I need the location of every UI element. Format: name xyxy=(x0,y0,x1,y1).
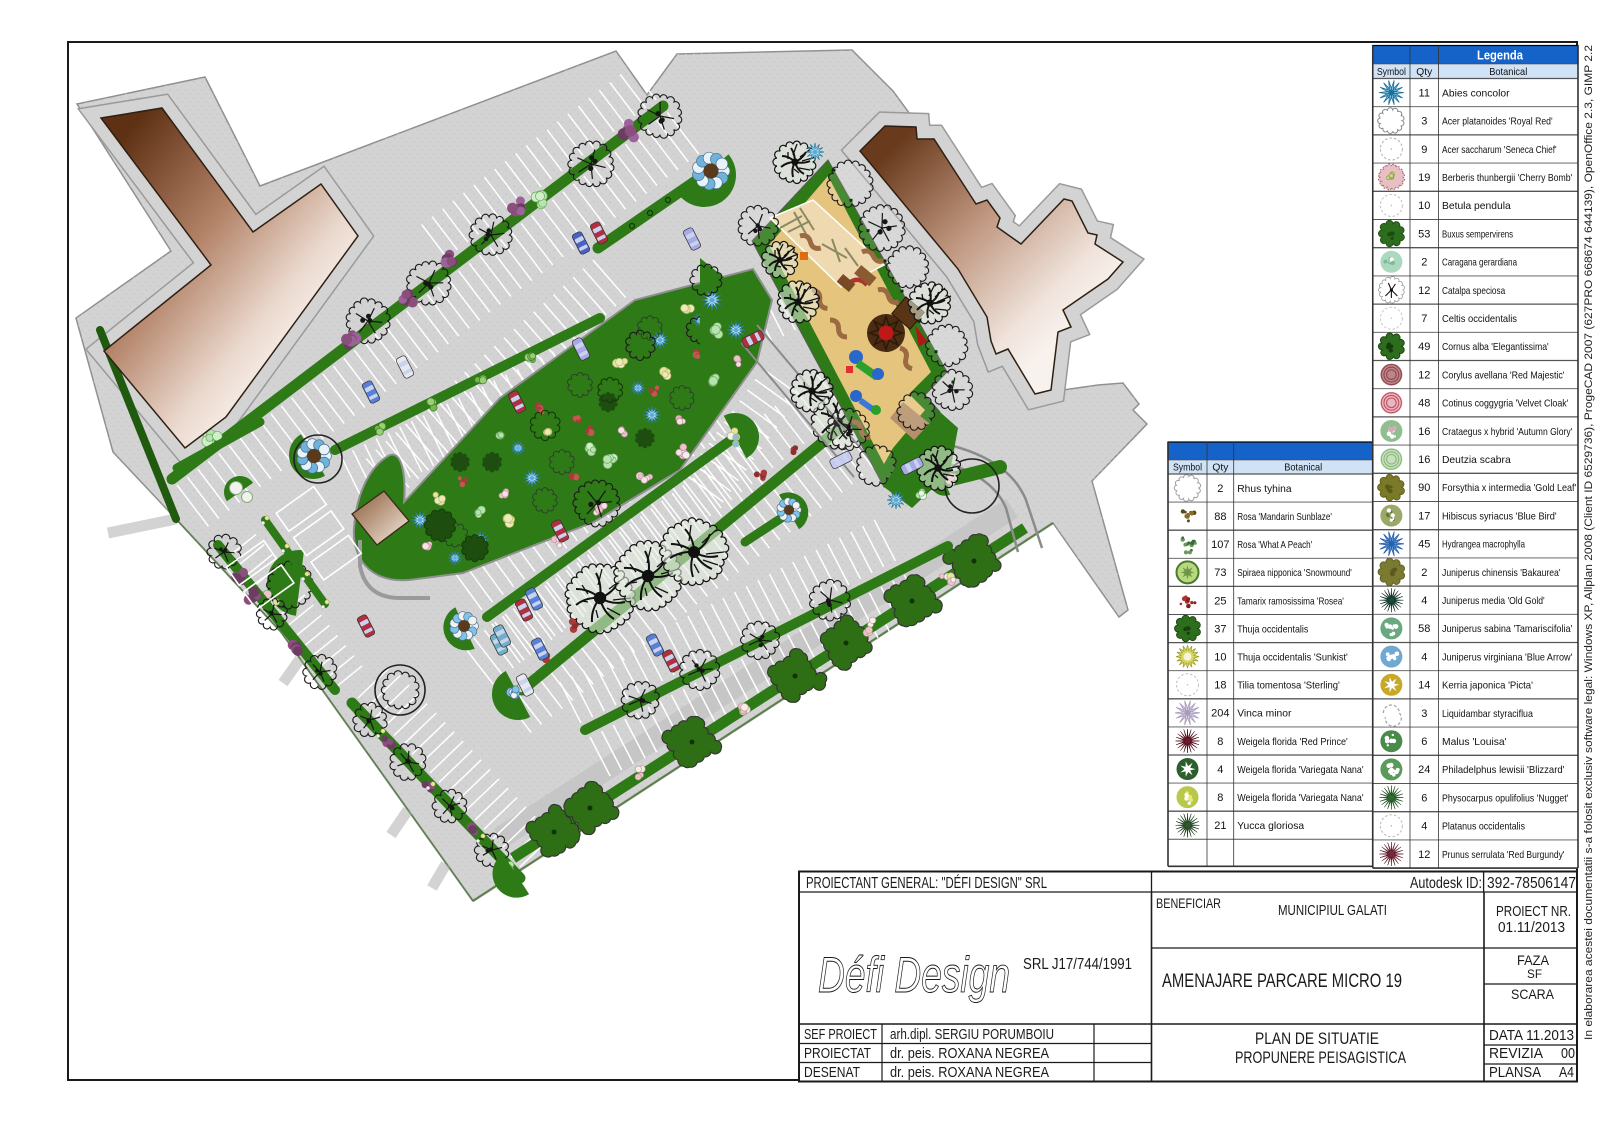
svg-text:18: 18 xyxy=(1214,680,1226,692)
svg-text:88: 88 xyxy=(1214,511,1226,523)
svg-text:SCARA: SCARA xyxy=(1511,986,1555,1002)
svg-text:Caragana gerardiana: Caragana gerardiana xyxy=(1442,258,1517,269)
svg-text:Acer saccharum 'Seneca Chief': Acer saccharum 'Seneca Chief' xyxy=(1442,145,1557,156)
svg-text:arh.dipl. SERGIU PORUMBOIU: arh.dipl. SERGIU PORUMBOIU xyxy=(890,1026,1054,1043)
svg-text:6: 6 xyxy=(1421,792,1427,804)
svg-text:14: 14 xyxy=(1418,680,1430,692)
svg-text:48: 48 xyxy=(1418,398,1430,410)
svg-text:Malus 'Louisa': Malus 'Louisa' xyxy=(1442,737,1507,748)
svg-text:Cornus alba 'Elegantissima': Cornus alba 'Elegantissima' xyxy=(1442,342,1549,353)
svg-text:SF: SF xyxy=(1527,967,1542,981)
svg-text:16: 16 xyxy=(1418,426,1430,438)
svg-text:45: 45 xyxy=(1418,539,1430,551)
svg-text:DESENAT: DESENAT xyxy=(804,1064,860,1081)
svg-text:11: 11 xyxy=(1419,87,1430,99)
svg-text:Qty: Qty xyxy=(1416,66,1433,78)
svg-text:01.11/2013: 01.11/2013 xyxy=(1498,920,1565,936)
svg-text:12: 12 xyxy=(1418,285,1430,297)
svg-text:Philadelphus lewisii 'Blizzard: Philadelphus lewisii 'Blizzard' xyxy=(1442,765,1565,776)
svg-text:12: 12 xyxy=(1418,849,1430,861)
svg-text:Vinca minor: Vinca minor xyxy=(1237,709,1292,720)
svg-text:Celtis occidentalis: Celtis occidentalis xyxy=(1442,314,1517,325)
svg-text:Buxus sempervirens: Buxus sempervirens xyxy=(1442,229,1513,240)
svg-text:107: 107 xyxy=(1211,539,1229,551)
svg-text:Weigela florida 'Red Prince': Weigela florida 'Red Prince' xyxy=(1237,737,1348,748)
svg-text:Symbol: Symbol xyxy=(1173,462,1202,474)
svg-text:21: 21 xyxy=(1214,820,1226,832)
svg-text:25: 25 xyxy=(1214,595,1226,607)
svg-text:PROIECTANT GENERAL: "DÉFI DESI: PROIECTANT GENERAL: "DÉFI DESIGN" SRL xyxy=(806,875,1047,892)
svg-text:Corylus avellana 'Red Majestic: Corylus avellana 'Red Majestic' xyxy=(1442,370,1565,381)
svg-text:8: 8 xyxy=(1217,736,1223,748)
svg-text:Tilia tomentosa 'Sterling': Tilia tomentosa 'Sterling' xyxy=(1237,681,1340,692)
svg-text:10: 10 xyxy=(1214,651,1226,663)
svg-text:00: 00 xyxy=(1561,1045,1575,1062)
svg-text:Qty: Qty xyxy=(1212,462,1229,474)
svg-text:6: 6 xyxy=(1421,736,1427,748)
svg-text:37: 37 xyxy=(1214,623,1226,635)
svg-text:49: 49 xyxy=(1418,341,1430,353)
svg-text:3: 3 xyxy=(1421,116,1427,128)
svg-text:Yucca gloriosa: Yucca gloriosa xyxy=(1237,821,1304,832)
svg-text:Cotinus coggygria 'Velvet Cloa: Cotinus coggygria 'Velvet Cloak' xyxy=(1442,399,1568,410)
svg-text:8: 8 xyxy=(1217,792,1223,804)
svg-text:BENEFICIAR: BENEFICIAR xyxy=(1156,895,1221,911)
svg-text:PROPUNERE PEISAGISTICA: PROPUNERE PEISAGISTICA xyxy=(1235,1049,1406,1067)
svg-text:2: 2 xyxy=(1421,567,1427,579)
svg-text:Rhus tyhina: Rhus tyhina xyxy=(1237,484,1292,495)
svg-text:Botanical: Botanical xyxy=(1284,462,1322,474)
svg-text:Rosa 'Mandarin Sunblaze': Rosa 'Mandarin Sunblaze' xyxy=(1237,512,1332,523)
svg-text:2: 2 xyxy=(1217,483,1223,495)
svg-text:PROIECTAT: PROIECTAT xyxy=(804,1045,871,1062)
svg-text:dr. peis. ROXANA NEGREA: dr. peis. ROXANA NEGREA xyxy=(890,1064,1049,1081)
svg-text:7: 7 xyxy=(1421,313,1427,325)
svg-text:Physocarpus opulifolius 'Nugge: Physocarpus opulifolius 'Nugget' xyxy=(1442,793,1568,804)
svg-text:A4: A4 xyxy=(1559,1064,1574,1081)
svg-text:Autodesk ID:: Autodesk ID: xyxy=(1410,875,1482,892)
svg-text:Juniperus virginiana 'Blue Arr: Juniperus virginiana 'Blue Arrow' xyxy=(1442,652,1572,663)
svg-text:Kerria japonica 'Picta': Kerria japonica 'Picta' xyxy=(1442,681,1533,692)
svg-text:4: 4 xyxy=(1421,821,1427,833)
svg-text:Thuja occidentalis: Thuja occidentalis xyxy=(1237,624,1308,635)
svg-text:Weigela florida 'Variegata Nan: Weigela florida 'Variegata Nana' xyxy=(1237,793,1363,804)
svg-text:90: 90 xyxy=(1418,482,1430,494)
svg-text:16: 16 xyxy=(1418,454,1430,466)
svg-text:Weigela florida 'Variegata Nan: Weigela florida 'Variegata Nana' xyxy=(1237,765,1363,776)
svg-text:53: 53 xyxy=(1418,228,1430,240)
svg-text:3: 3 xyxy=(1421,708,1427,720)
svg-text:58: 58 xyxy=(1418,623,1430,635)
svg-text:Abies concolor: Abies concolor xyxy=(1442,88,1510,99)
svg-text:Berberis thunbergii 'Cherry Bo: Berberis thunbergii 'Cherry Bomb' xyxy=(1442,173,1572,184)
svg-text:9: 9 xyxy=(1421,144,1427,156)
svg-text:24: 24 xyxy=(1418,764,1430,776)
svg-text:dr. peis. ROXANA NEGREA: dr. peis. ROXANA NEGREA xyxy=(890,1045,1049,1062)
svg-text:DATA 11.2013: DATA 11.2013 xyxy=(1489,1027,1574,1044)
svg-text:204: 204 xyxy=(1211,708,1229,720)
svg-text:4: 4 xyxy=(1421,651,1427,663)
svg-text:MUNICIPIUL GALATI: MUNICIPIUL GALATI xyxy=(1278,903,1387,919)
svg-text:Botanical: Botanical xyxy=(1489,66,1527,78)
svg-text:Crataegus x hybrid 'Autumn Glo: Crataegus x hybrid 'Autumn Glory' xyxy=(1442,427,1572,438)
svg-text:2: 2 xyxy=(1421,257,1427,269)
svg-text:Thuja occidentalis 'Sunkist': Thuja occidentalis 'Sunkist' xyxy=(1237,652,1348,663)
svg-text:Platanus occidentalis: Platanus occidentalis xyxy=(1442,822,1525,833)
svg-text:Betula pendula: Betula pendula xyxy=(1442,201,1511,212)
svg-text:FAZA: FAZA xyxy=(1517,952,1550,968)
svg-text:SRL J17/744/1991: SRL J17/744/1991 xyxy=(1023,956,1132,973)
svg-text:73: 73 xyxy=(1214,567,1226,579)
svg-text:Spiraea nipponica 'Snowmound': Spiraea nipponica 'Snowmound' xyxy=(1237,568,1352,579)
svg-text:Symbol: Symbol xyxy=(1377,66,1406,78)
svg-text:Hibiscus syriacus 'Blue Bird': Hibiscus syriacus 'Blue Bird' xyxy=(1442,511,1557,522)
svg-text:Défi Design: Défi Design xyxy=(818,947,1010,1003)
svg-text:392-78506147: 392-78506147 xyxy=(1487,875,1576,892)
svg-text:In elaborarea acestei document: In elaborarea acestei documentatii s-a f… xyxy=(1583,45,1595,1040)
svg-text:PLAN DE SITUATIE: PLAN DE SITUATIE xyxy=(1255,1030,1379,1048)
svg-text:Catalpa speciosa: Catalpa speciosa xyxy=(1442,286,1505,297)
svg-text:Deutzia scabra: Deutzia scabra xyxy=(1442,455,1511,466)
svg-text:Acer platanoides 'Royal Red': Acer platanoides 'Royal Red' xyxy=(1442,117,1553,128)
svg-text:12: 12 xyxy=(1418,369,1430,381)
svg-text:19: 19 xyxy=(1418,172,1430,184)
svg-text:Rosa 'What A Peach': Rosa 'What A Peach' xyxy=(1237,540,1312,551)
svg-text:4: 4 xyxy=(1421,595,1427,607)
svg-text:Juniperus sabina 'Tamariscifol: Juniperus sabina 'Tamariscifolia' xyxy=(1442,624,1572,635)
svg-text:Legenda: Legenda xyxy=(1477,48,1524,63)
svg-text:PROIECT NR.: PROIECT NR. xyxy=(1496,904,1571,920)
svg-text:Prunus serrulata 'Red Burgundy: Prunus serrulata 'Red Burgundy' xyxy=(1442,850,1565,861)
svg-text:Liquidambar styraciflua: Liquidambar styraciflua xyxy=(1442,709,1533,720)
svg-text:Forsythia x intermedia 'Gold L: Forsythia x intermedia 'Gold Leaf' xyxy=(1442,483,1576,494)
svg-text:Juniperus media 'Old Gold': Juniperus media 'Old Gold' xyxy=(1442,596,1545,607)
svg-text:4: 4 xyxy=(1217,764,1223,776)
svg-text:PLANSA: PLANSA xyxy=(1489,1064,1541,1081)
svg-text:17: 17 xyxy=(1418,510,1430,522)
svg-text:Hydrangea macrophylla: Hydrangea macrophylla xyxy=(1442,540,1525,551)
svg-text:REVIZIA: REVIZIA xyxy=(1489,1045,1543,1062)
svg-text:AMENAJARE PARCARE MICRO 19: AMENAJARE PARCARE MICRO 19 xyxy=(1162,971,1402,992)
svg-text:Tamarix ramosissima 'Rosea': Tamarix ramosissima 'Rosea' xyxy=(1237,596,1344,607)
svg-text:10: 10 xyxy=(1418,200,1430,212)
svg-text:SEF PROIECT: SEF PROIECT xyxy=(804,1026,877,1043)
svg-text:Juniperus chinensis 'Bakaurea': Juniperus chinensis 'Bakaurea' xyxy=(1442,568,1561,579)
